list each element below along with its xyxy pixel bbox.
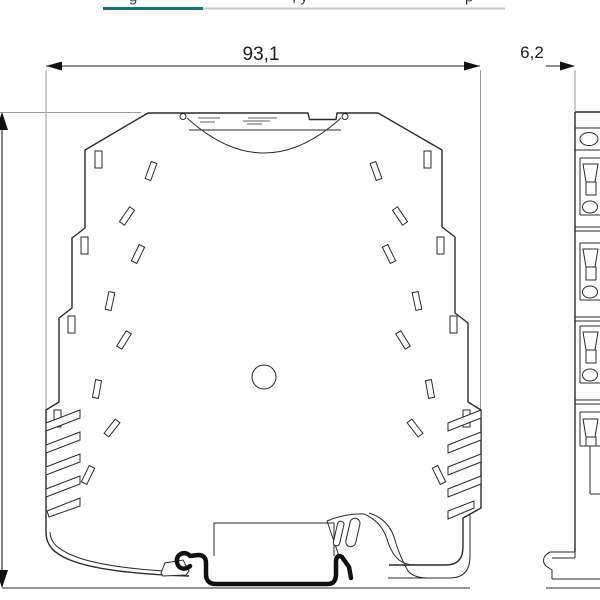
din-rail-clamp bbox=[177, 553, 351, 584]
side-width-dimension-arrow bbox=[560, 62, 575, 71]
tab-label-inactive-fragment-a[interactable]: , y bbox=[292, 0, 308, 6]
tab-label-inactive-fragment-b[interactable]: p bbox=[465, 0, 473, 6]
dimension-drawing-svg: g , y p 93,1 6,2 bbox=[0, 0, 600, 600]
front-view bbox=[46, 113, 481, 584]
dimension-arrow-left bbox=[46, 62, 62, 71]
side-foot bbox=[543, 552, 600, 579]
page: g , y p 93,1 6,2 bbox=[0, 0, 600, 600]
dimension-lines: 93,1 6,2 bbox=[0, 43, 600, 588]
terminal-4 bbox=[580, 412, 600, 446]
tab-label-active-fragment[interactable]: g bbox=[129, 0, 137, 6]
front-width-dimension-label: 93,1 bbox=[243, 44, 280, 65]
height-arrow-up bbox=[0, 112, 8, 130]
height-arrow-down bbox=[0, 570, 8, 588]
vent-slot-fan-right bbox=[370, 162, 446, 485]
terminal-3 bbox=[580, 326, 600, 383]
vent-slot-fan-left bbox=[81, 162, 157, 485]
housing-outline bbox=[46, 113, 481, 576]
louver-slats-left bbox=[46, 410, 80, 517]
din-rail-section bbox=[214, 523, 334, 556]
mounting-circle bbox=[252, 365, 276, 389]
release-latch bbox=[327, 513, 428, 578]
dimension-arrow-right bbox=[464, 62, 480, 71]
inactive-tab-rule bbox=[203, 8, 505, 10]
side-view bbox=[543, 112, 600, 579]
active-tab-underline[interactable] bbox=[103, 7, 203, 10]
edge-vent-slots bbox=[54, 151, 470, 427]
terminal-2 bbox=[580, 243, 600, 300]
tab-bar: g , y p bbox=[103, 0, 505, 10]
side-width-dimension-label: 6,2 bbox=[520, 43, 544, 62]
terminal-1 bbox=[580, 158, 600, 215]
